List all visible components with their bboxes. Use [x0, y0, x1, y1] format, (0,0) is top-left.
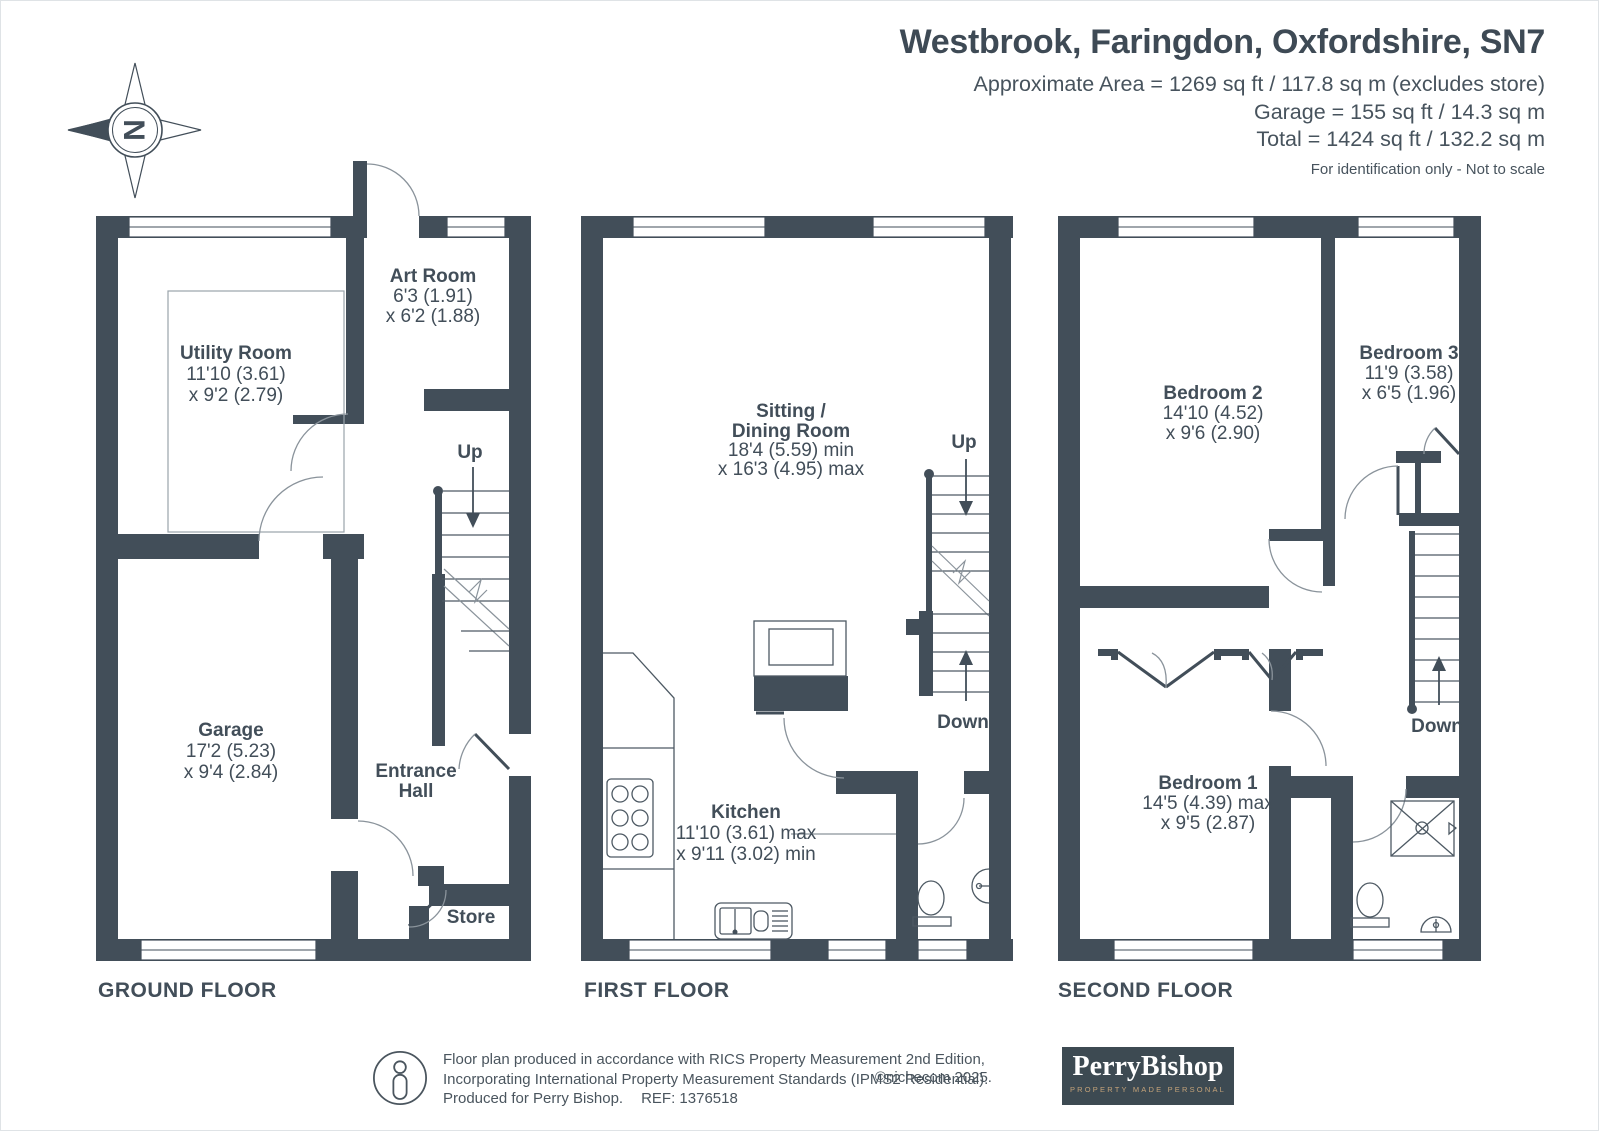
utility-inner-outline	[168, 291, 344, 532]
ground-floor-windows	[129, 217, 531, 960]
shower-icon	[1391, 801, 1456, 856]
bedroom2-dim1: 14'10 (4.52)	[1163, 403, 1264, 424]
utility-room-name: Utility Room	[180, 343, 292, 364]
sitting-room-dim1: 18'4 (5.59) min	[728, 440, 854, 461]
kitchen-dim2: x 9'11 (3.02) min	[676, 844, 816, 865]
art-room-dim1: 6'3 (1.91)	[393, 286, 473, 307]
bedroom1-dim2: x 9'5 (2.87)	[1161, 813, 1255, 834]
sitting-room-name-line2: Dining Room	[732, 421, 850, 442]
produced-for-text: Produced for Perry Bishop.	[443, 1090, 623, 1107]
garage-name: Garage	[198, 720, 263, 741]
garage-area-line: Garage = 155 sq ft / 14.3 sq m	[900, 99, 1545, 127]
logo-tagline: PROPERTY MADE PERSONAL	[1062, 1085, 1234, 1094]
kitchen-counter	[603, 653, 896, 939]
utility-room-dim2: x 9'2 (2.79)	[189, 385, 283, 406]
second-floor-plan: Down Bedroom 2 14'10 (4.52) x 9'6 (2.90)…	[1058, 216, 1481, 961]
chimney-breast	[754, 676, 848, 711]
reference-number: REF: 1376518	[641, 1090, 738, 1107]
ground-floor-title: GROUND FLOOR	[98, 979, 277, 1002]
approximate-area-line: Approximate Area = 1269 sq ft / 117.8 sq…	[900, 71, 1545, 99]
garage-dim1: 17'2 (5.23)	[186, 741, 276, 762]
entrance-hall-name-line2: Hall	[399, 781, 434, 802]
front-door-opening	[509, 734, 531, 776]
bedroom2-name: Bedroom 2	[1163, 383, 1262, 404]
ground-floor-plan: Up Utility Room 11'10 (3.61) x 9'2 (2.79…	[96, 161, 531, 961]
kitchen-name: Kitchen	[711, 802, 781, 823]
hob-icon	[607, 779, 653, 857]
person-icon	[372, 1050, 428, 1106]
bedroom3-name: Bedroom 3	[1359, 343, 1458, 364]
header: Westbrook, Faringdon, Oxfordshire, SN7 A…	[900, 23, 1545, 178]
footer-line3: Produced for Perry Bishop.REF: 1376518	[443, 1089, 988, 1109]
sink-icon	[715, 903, 792, 939]
perry-bishop-logo: PerryBishop PROPERTY MADE PERSONAL	[1062, 1047, 1234, 1105]
first-floor-stairs	[924, 469, 989, 692]
compass-icon: N	[68, 63, 201, 198]
second-floor-walls	[1058, 216, 1481, 961]
bedroom1-name: Bedroom 1	[1158, 773, 1258, 794]
ground-up-label: Up	[457, 442, 482, 463]
bedroom2-dim2: x 9'6 (2.90)	[1166, 423, 1260, 444]
bedroom3-dim2: x 6'5 (1.96)	[1362, 383, 1456, 404]
store-name: Store	[447, 907, 496, 928]
second-down-label: Down	[1411, 716, 1463, 737]
sitting-room-dim2: x 16'3 (4.95) max	[718, 459, 865, 480]
art-room-dim2: x 6'2 (1.88)	[386, 306, 480, 327]
first-up-label: Up	[951, 432, 976, 453]
first-floor-bathroom-fixtures	[913, 869, 989, 926]
total-area-line: Total = 1424 sq ft / 132.2 sq m	[900, 126, 1545, 154]
bedroom3-dim1: 11'9 (3.58)	[1365, 363, 1454, 384]
compass-north-letter: N	[119, 119, 152, 141]
ground-floor-stair-arrow	[466, 467, 480, 528]
copyright-text: ©nichecom 2025.	[875, 1069, 992, 1086]
first-floor-plan: Up Down Sitting / Dining Room 18'4 (5.59…	[581, 216, 1013, 961]
logo-wordmark: PerryBishop	[1062, 1051, 1234, 1083]
first-floor-room-labels: Sitting / Dining Room 18'4 (5.59) min x …	[676, 401, 865, 865]
page-title: Westbrook, Faringdon, Oxfordshire, SN7	[900, 23, 1545, 62]
garage-dim2: x 9'4 (2.84)	[184, 762, 278, 783]
footer-line1: Floor plan produced in accordance with R…	[443, 1050, 988, 1070]
floorplan-page: N	[0, 0, 1599, 1131]
first-down-label: Down	[937, 712, 989, 733]
ground-floor-stairs	[432, 486, 509, 746]
second-floor-stairs	[1407, 531, 1459, 714]
second-floor-bathroom-fixtures	[1351, 883, 1451, 932]
sitting-room-name-line1: Sitting /	[756, 401, 826, 422]
bedroom1-dim1: 14'5 (4.39) max	[1142, 793, 1274, 814]
utility-room-dim1: 11'10 (3.61)	[186, 364, 285, 385]
kitchen-dim1: 11'10 (3.61) max	[676, 823, 817, 844]
scale-disclaimer: For identification only - Not to scale	[900, 161, 1545, 178]
art-room-name: Art Room	[390, 266, 477, 287]
entrance-hall-name-line1: Entrance	[375, 761, 456, 782]
second-floor-title: SECOND FLOOR	[1058, 979, 1233, 1002]
fireplace-stove	[754, 621, 846, 676]
first-floor-title: FIRST FLOOR	[584, 979, 730, 1002]
